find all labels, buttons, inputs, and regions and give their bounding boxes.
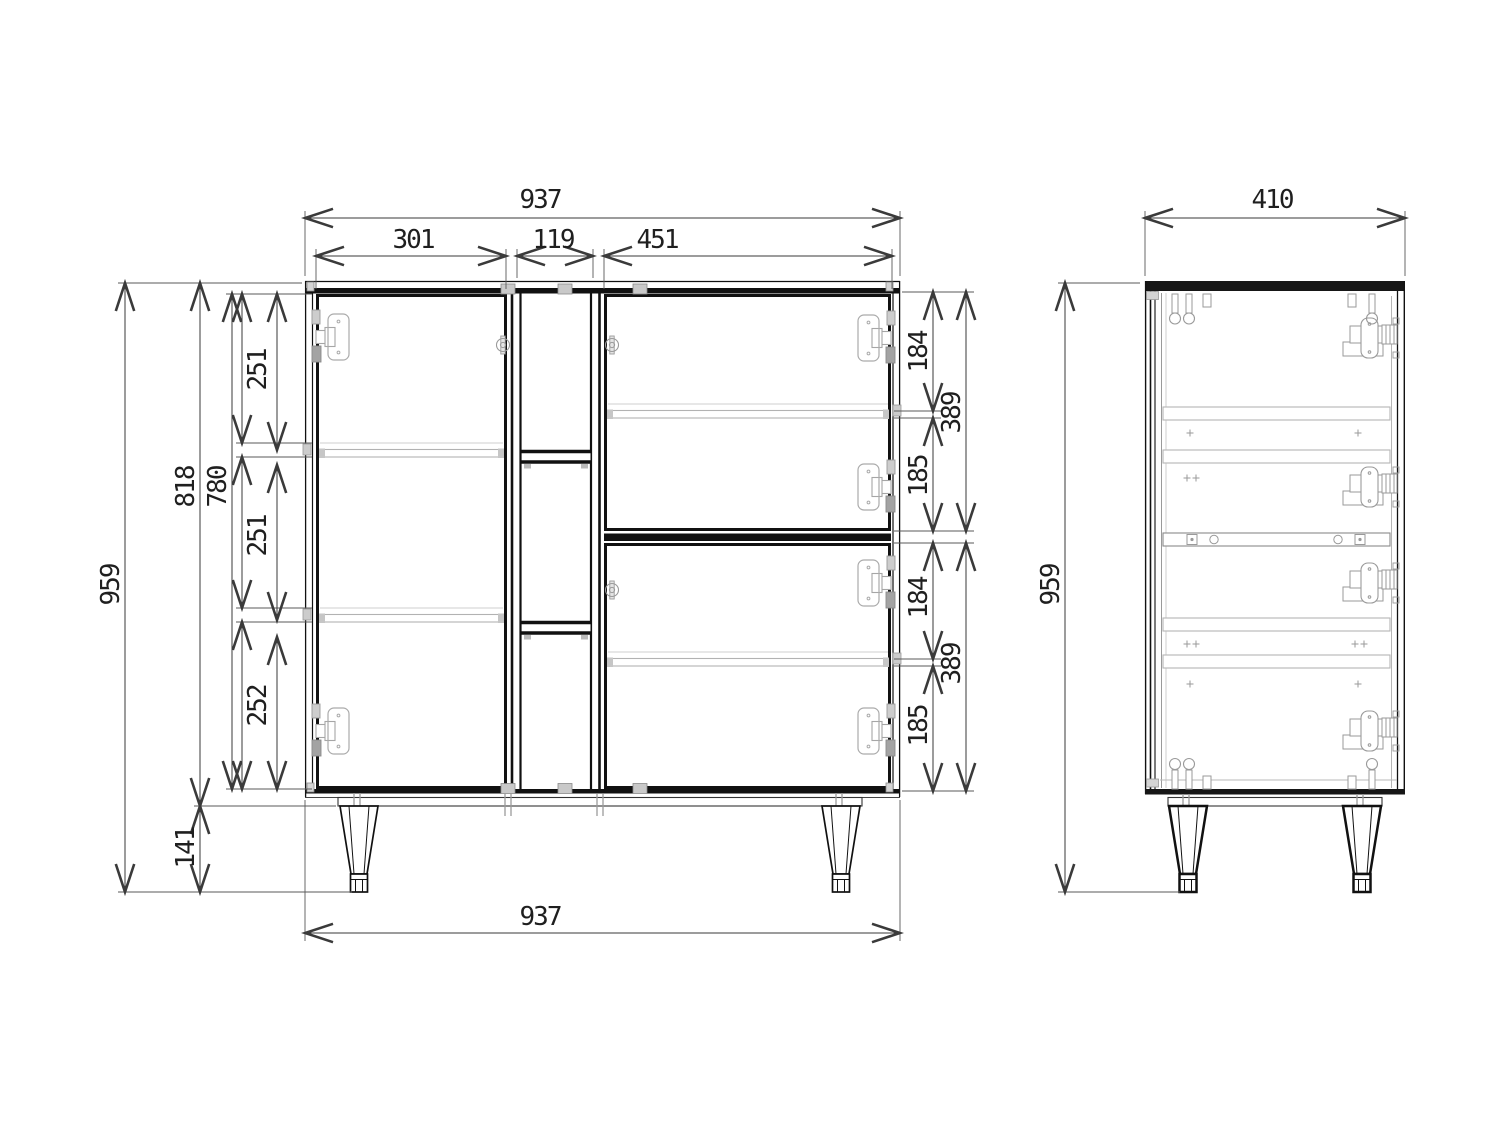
connector-tab (558, 284, 572, 294)
side-top-band (1145, 281, 1405, 291)
dim-rb-hinge-bottom: 185 (904, 705, 934, 746)
dim-left-door-width: 301 (393, 225, 434, 255)
dim-front-width-top: 937 (520, 185, 561, 215)
left-door (318, 296, 506, 788)
front-plinth (338, 798, 862, 807)
panel-cam (893, 405, 901, 416)
dim-compartment-bottom: 252 (243, 685, 273, 726)
panel-cam (893, 653, 901, 664)
dim-leg-height: 141 (171, 827, 201, 868)
dim-body-height: 818 (171, 466, 201, 507)
connector-tab (501, 284, 515, 294)
front-top-band (306, 288, 899, 294)
dim-right-door-width: 451 (637, 225, 678, 255)
dim-interior-height: 780 (203, 466, 233, 507)
technical-drawing-canvas: 937 301 119 451 959 818 780 251 251 252 … (0, 0, 1500, 1125)
dowel-icon (1348, 294, 1356, 307)
dim-rt-hinge-bottom: 185 (904, 455, 934, 496)
dim-rb-hinge-top: 184 (904, 576, 934, 618)
dim-compartment-mid: 251 (243, 515, 273, 556)
side-door-top-fitting (1147, 292, 1159, 300)
dowel-icon (1203, 294, 1211, 307)
dim-rt-door-height: 389 (937, 392, 967, 433)
connector-tab (633, 284, 647, 294)
dowel-icon (1203, 776, 1211, 789)
right-section-divider (604, 534, 891, 542)
cabinet-drawing: 937 301 119 451 959 818 780 251 251 252 … (0, 0, 1500, 1125)
connector-tab (633, 784, 647, 794)
dim-front-width-bottom: 937 (520, 902, 561, 932)
panel-cam (303, 444, 311, 455)
dowel-icon (1348, 776, 1356, 789)
side-shelf-band (1163, 533, 1390, 546)
connector-tab (558, 784, 572, 794)
panel-cam (303, 609, 311, 620)
side-door-bottom-fitting (1147, 779, 1159, 787)
corner-fitting (307, 282, 314, 291)
side-bottom-band (1145, 789, 1405, 795)
dim-compartment-top: 251 (243, 349, 273, 390)
dim-side-height: 959 (1036, 564, 1066, 605)
corner-fitting (886, 783, 893, 792)
corner-fitting (307, 783, 314, 792)
dim-rb-door-height: 389 (937, 643, 967, 684)
connector-tab (501, 784, 515, 794)
dim-front-height-total: 959 (96, 564, 126, 605)
side-plinth (1168, 798, 1382, 807)
dim-rt-hinge-top: 184 (904, 330, 934, 372)
dim-side-depth: 410 (1252, 185, 1293, 215)
dim-center-width: 119 (533, 225, 574, 255)
front-bottom-band (306, 789, 899, 794)
